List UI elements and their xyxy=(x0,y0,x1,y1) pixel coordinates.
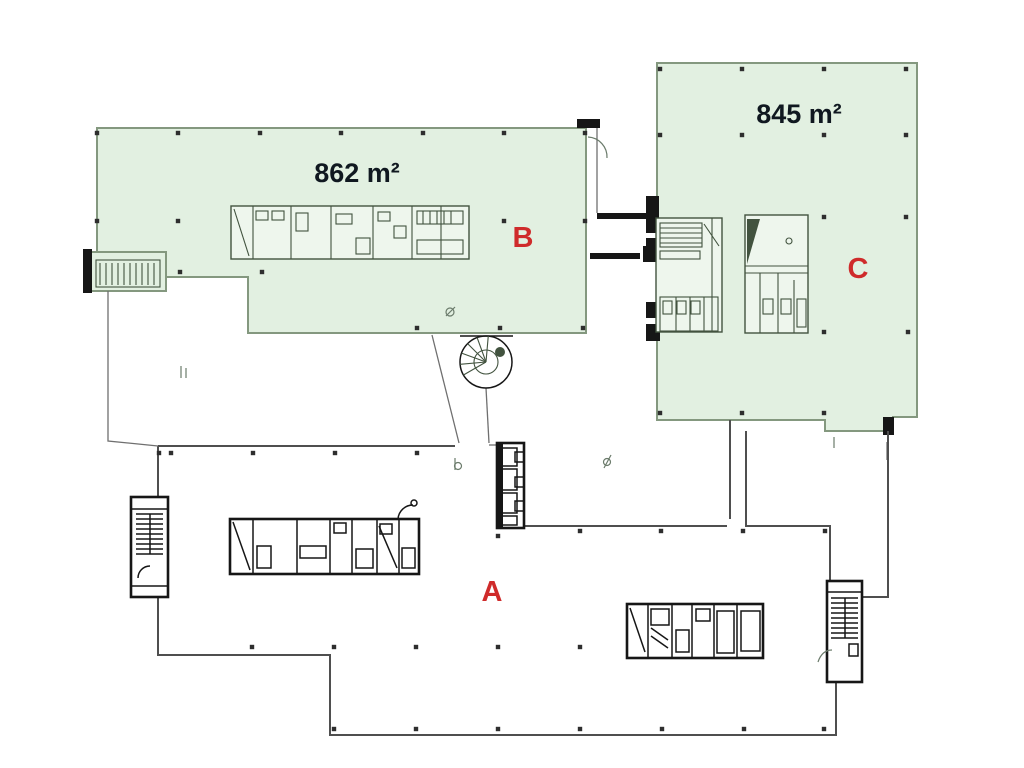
section-b-escape-stair xyxy=(83,249,166,293)
elevator-shaft xyxy=(497,443,524,528)
section-c-area-label: 845 m² xyxy=(756,99,842,129)
stair-east xyxy=(818,581,862,682)
floor-plan-svg: 862 m² 845 m² B C A xyxy=(0,0,1024,768)
section-b-area-label: 862 m² xyxy=(314,158,400,188)
spiral-stair xyxy=(460,336,513,388)
stair-west xyxy=(131,497,168,597)
core-a-east xyxy=(627,604,763,658)
section-b-letter: B xyxy=(513,222,534,254)
core-b xyxy=(231,206,469,259)
floor-plan-page: 862 m² 845 m² B C A xyxy=(0,0,1024,768)
atrium-edge-east xyxy=(486,388,489,443)
terrace-line xyxy=(108,291,158,446)
core-a-west xyxy=(230,500,419,574)
section-b-shaft xyxy=(577,119,600,128)
section-c-letter: C xyxy=(848,253,869,285)
atrium-edge-west xyxy=(432,335,459,443)
section-a-letter: A xyxy=(482,576,503,608)
door-swing-arc xyxy=(398,505,413,519)
